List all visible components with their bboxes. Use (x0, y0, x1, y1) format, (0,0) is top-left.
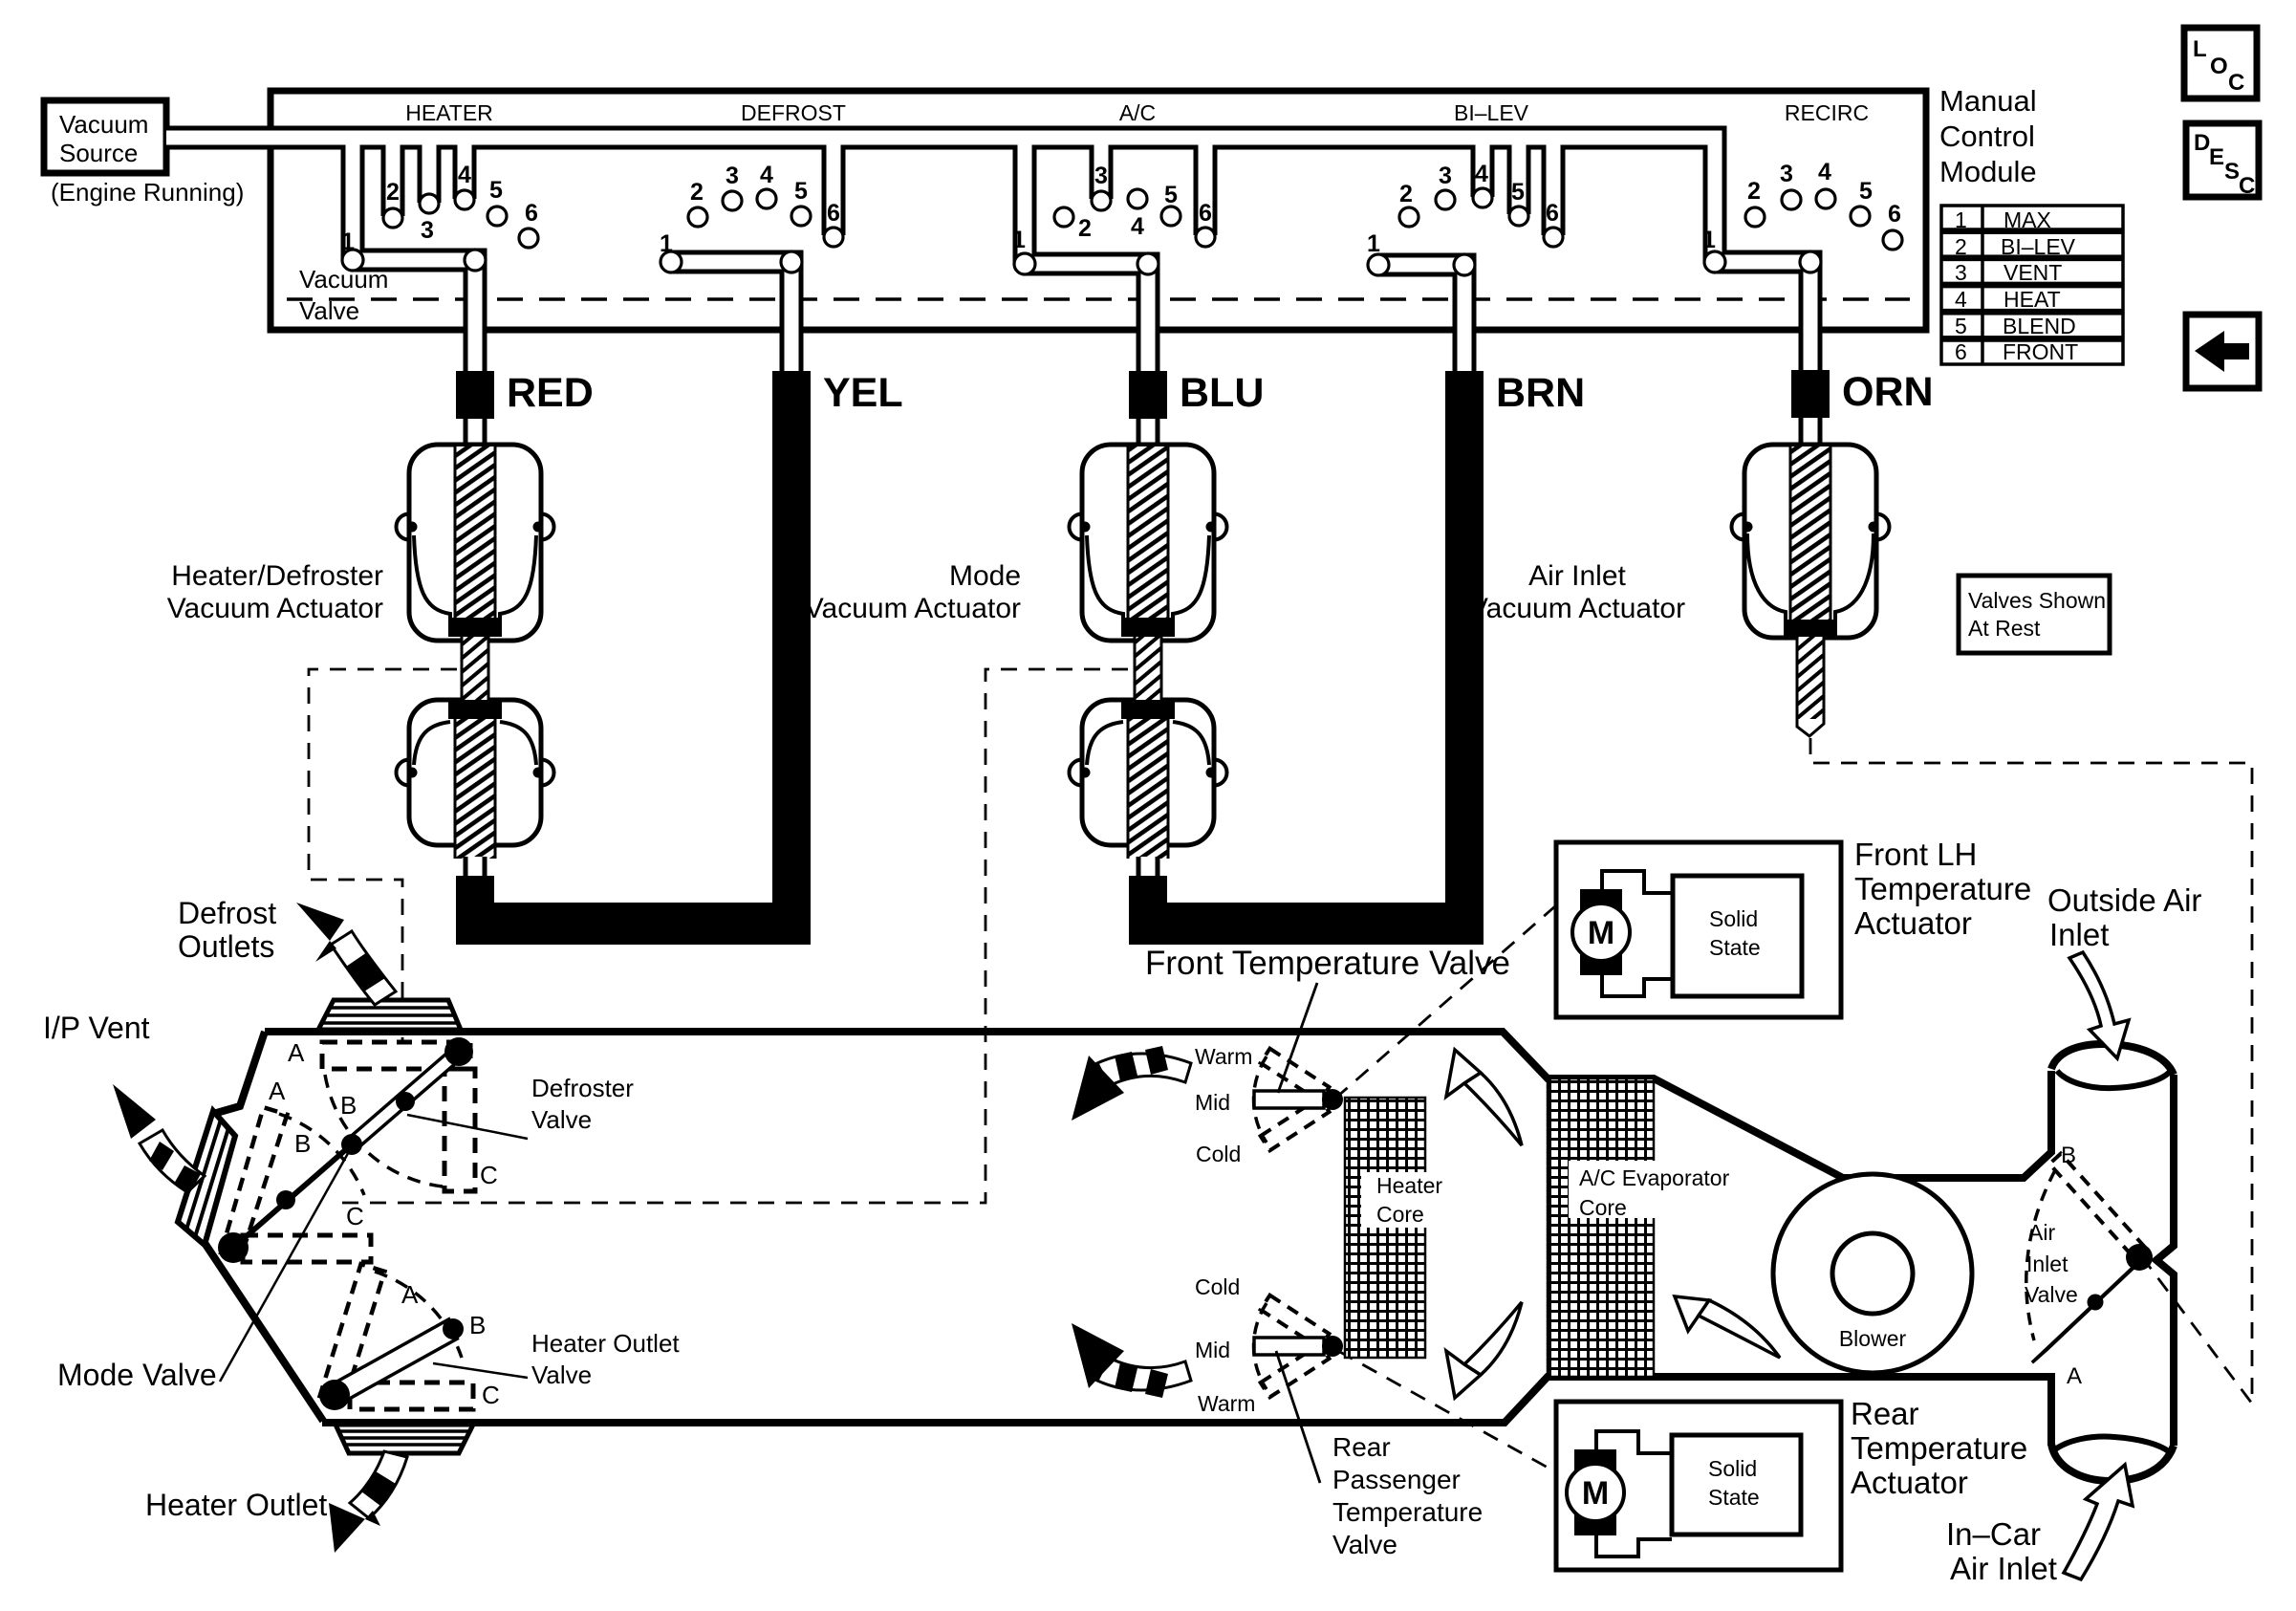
svg-text:5: 5 (1511, 179, 1525, 206)
svg-text:State: State (1709, 935, 1761, 960)
svg-text:Rear: Rear (1851, 1396, 1919, 1431)
svg-text:2: 2 (1399, 181, 1413, 207)
svg-text:3: 3 (1094, 163, 1108, 189)
svg-text:D: D (2194, 130, 2210, 156)
svg-text:3: 3 (1780, 161, 1793, 187)
svg-text:In–Car: In–Car (1946, 1516, 2041, 1552)
svg-text:5: 5 (1859, 178, 1873, 205)
svg-text:Solid: Solid (1709, 906, 1758, 931)
svg-text:5: 5 (794, 178, 808, 205)
svg-text:Actuator: Actuator (1854, 905, 1972, 941)
svg-text:Valve: Valve (531, 1105, 592, 1134)
svg-text:B: B (2061, 1143, 2076, 1168)
svg-text:Heater Outlet: Heater Outlet (531, 1329, 680, 1358)
svg-text:(Engine Running): (Engine Running) (51, 178, 244, 207)
svg-text:Blower: Blower (1839, 1326, 1907, 1351)
svg-text:Valves Shown: Valves Shown (1968, 588, 2106, 613)
svg-text:Temperature: Temperature (1332, 1497, 1483, 1527)
svg-text:Vacuum: Vacuum (59, 110, 148, 139)
svg-text:S: S (2224, 159, 2240, 185)
svg-text:FRONT: FRONT (2003, 339, 2078, 364)
svg-text:Cold: Cold (1196, 1142, 1241, 1166)
svg-text:Front LH: Front LH (1854, 837, 1977, 872)
svg-text:C: C (346, 1202, 364, 1230)
svg-text:Warm: Warm (1195, 1044, 1252, 1069)
svg-text:ORN: ORN (1842, 369, 1934, 415)
svg-text:2: 2 (1747, 178, 1761, 205)
svg-text:4: 4 (1475, 161, 1488, 187)
svg-text:A: A (269, 1077, 286, 1105)
svg-text:Front Temperature Valve: Front Temperature Valve (1145, 945, 1510, 982)
svg-text:Actuator: Actuator (1851, 1465, 1968, 1500)
svg-text:Temperature: Temperature (1854, 871, 2031, 906)
svg-text:Vacuum Actuator: Vacuum Actuator (1469, 593, 1685, 624)
svg-text:6: 6 (1955, 339, 1967, 364)
svg-text:5: 5 (1955, 314, 1967, 338)
svg-text:Mode: Mode (949, 560, 1021, 592)
svg-text:Vacuum Actuator: Vacuum Actuator (805, 593, 1021, 624)
svg-text:VENT: VENT (2004, 260, 2062, 285)
svg-text:MAX: MAX (2004, 207, 2051, 232)
svg-text:Core: Core (1579, 1195, 1627, 1220)
svg-text:C: C (480, 1161, 498, 1189)
svg-text:6: 6 (827, 200, 840, 227)
svg-text:Defroster: Defroster (531, 1074, 634, 1102)
svg-text:B: B (469, 1311, 486, 1339)
svg-text:HEAT: HEAT (2004, 287, 2061, 312)
svg-text:C: C (482, 1381, 500, 1409)
svg-text:5: 5 (1164, 182, 1178, 208)
svg-text:2: 2 (386, 179, 400, 206)
svg-text:1: 1 (1012, 227, 1026, 253)
svg-text:2: 2 (1078, 215, 1092, 242)
svg-text:Mid: Mid (1195, 1090, 1230, 1115)
svg-text:1: 1 (341, 229, 355, 255)
svg-text:1: 1 (1367, 230, 1380, 257)
svg-text:BI–LEV: BI–LEV (1454, 100, 1529, 125)
svg-text:RED: RED (507, 370, 594, 416)
svg-text:YEL: YEL (823, 370, 903, 416)
svg-text:2: 2 (690, 179, 704, 206)
svg-text:Control: Control (1939, 120, 2035, 153)
svg-text:Valve: Valve (2025, 1282, 2078, 1307)
svg-text:Defrost: Defrost (178, 896, 276, 930)
svg-text:M: M (1588, 915, 1614, 951)
svg-text:Outlets: Outlets (178, 929, 274, 964)
svg-text:1: 1 (660, 230, 673, 257)
svg-text:BI–LEV: BI–LEV (2001, 234, 2076, 259)
svg-text:Valve: Valve (1332, 1530, 1397, 1559)
svg-text:B: B (294, 1129, 311, 1158)
svg-text:Heater: Heater (1376, 1173, 1442, 1198)
svg-text:Heater/Defroster: Heater/Defroster (171, 560, 383, 592)
svg-text:BLU: BLU (1180, 370, 1264, 416)
svg-text:C: C (2239, 173, 2255, 199)
svg-text:Air: Air (2028, 1220, 2055, 1245)
svg-text:HEATER: HEATER (405, 100, 493, 125)
svg-text:Manual: Manual (1939, 84, 2037, 118)
svg-text:5: 5 (489, 177, 503, 204)
svg-text:RECIRC: RECIRC (1785, 100, 1869, 125)
svg-text:Cold: Cold (1195, 1274, 1240, 1299)
svg-text:Outside Air: Outside Air (2047, 882, 2201, 918)
svg-text:Warm: Warm (1198, 1391, 1255, 1416)
svg-text:L: L (2193, 36, 2207, 62)
svg-text:BRN: BRN (1496, 370, 1585, 416)
svg-text:A/C Evaporator: A/C Evaporator (1579, 1165, 1730, 1190)
svg-text:6: 6 (1888, 201, 1901, 228)
svg-text:Module: Module (1939, 155, 2037, 188)
svg-text:3: 3 (1439, 163, 1452, 189)
svg-text:I/P Vent: I/P Vent (43, 1011, 150, 1045)
svg-text:4: 4 (1955, 287, 1967, 312)
svg-text:3: 3 (421, 217, 434, 244)
svg-text:Mode Valve: Mode Valve (57, 1358, 217, 1392)
svg-text:Air Inlet: Air Inlet (1528, 560, 1626, 592)
svg-text:B: B (340, 1091, 357, 1120)
svg-text:1: 1 (1702, 227, 1716, 253)
svg-text:E: E (2209, 144, 2224, 170)
svg-text:Solid: Solid (1708, 1456, 1757, 1481)
svg-text:6: 6 (1199, 200, 1212, 227)
svg-text:M: M (1582, 1475, 1609, 1512)
svg-text:At Rest: At Rest (1968, 616, 2041, 641)
svg-text:2: 2 (1955, 234, 1967, 259)
svg-text:State: State (1708, 1485, 1760, 1510)
svg-text:Mid: Mid (1195, 1338, 1230, 1362)
svg-text:BLEND: BLEND (2003, 314, 2076, 338)
svg-text:Temperature: Temperature (1851, 1430, 2027, 1466)
svg-text:4: 4 (458, 162, 471, 188)
svg-text:Heater Outlet: Heater Outlet (145, 1488, 327, 1522)
svg-text:DEFROST: DEFROST (741, 100, 846, 125)
svg-text:4: 4 (760, 162, 773, 188)
svg-text:Source: Source (59, 139, 138, 167)
svg-text:3: 3 (1955, 260, 1967, 285)
svg-text:Vacuum Actuator: Vacuum Actuator (167, 593, 383, 624)
svg-text:Air Inlet: Air Inlet (1950, 1551, 2057, 1586)
svg-text:C: C (2228, 70, 2244, 96)
svg-text:6: 6 (525, 200, 538, 227)
svg-text:Inlet: Inlet (2049, 917, 2109, 952)
svg-text:Valve: Valve (299, 296, 359, 325)
svg-text:4: 4 (1818, 159, 1831, 185)
svg-text:Passenger: Passenger (1332, 1465, 1461, 1494)
svg-text:Inlet: Inlet (2026, 1252, 2069, 1276)
svg-text:4: 4 (1131, 213, 1144, 240)
svg-text:A: A (288, 1038, 305, 1067)
svg-text:A: A (2067, 1363, 2082, 1389)
svg-text:A/C: A/C (1119, 100, 1156, 125)
svg-text:A: A (401, 1280, 419, 1309)
svg-text:Rear: Rear (1332, 1432, 1391, 1462)
svg-text:1: 1 (1955, 207, 1967, 232)
svg-text:Core: Core (1376, 1202, 1424, 1227)
svg-text:O: O (2210, 54, 2228, 79)
svg-text:3: 3 (726, 163, 739, 189)
svg-text:6: 6 (1546, 200, 1559, 227)
svg-text:Valve: Valve (531, 1361, 592, 1389)
